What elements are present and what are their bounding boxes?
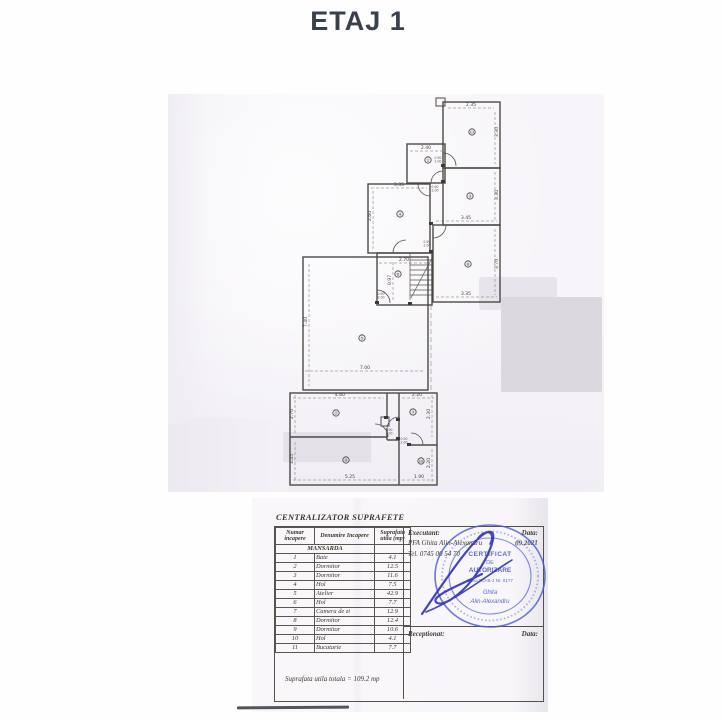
svg-text:0.902.00: 0.902.00 [401,437,408,444]
svg-text:3: 3 [469,194,471,198]
svg-text:0.902.00: 0.902.00 [435,156,442,163]
dimension-label: 3.70 [494,259,500,269]
table-row: 4Hol7.5 [276,581,411,590]
table-row: 5Atelier42.9 [276,590,411,599]
room-marker: 5 [359,335,365,341]
dimension-label: 3.30 [494,127,500,137]
dimension-label: 2.60 [367,211,373,221]
svg-text:0.902.00: 0.902.00 [432,185,439,192]
table-row: 8Dormitor12.4 [276,617,411,626]
table-row: 10Hol4.1 [276,635,411,644]
room-marker: 3 [467,193,473,199]
dimension-label: 5.25 [345,474,355,480]
dimension-label: 3.45 [461,215,471,221]
col-header-denumire: Denumire Incapere [315,528,375,545]
dimension-label: 2.35 [466,102,476,108]
svg-text:0.902.00: 0.902.00 [386,428,393,435]
dimension-label: 2.30 [426,409,432,419]
dimension-label: 3.35 [394,182,404,188]
dimension-label: 2.40 [421,145,431,151]
stamp-line: DE [486,560,494,566]
table-row: 7Camera de zi12.9 [276,608,411,617]
svg-text:2: 2 [335,411,337,415]
table-row: 11Bucatarie7.7 [276,644,411,653]
room-marker: 9 [343,457,349,463]
dimension-label: 3.35 [461,291,471,297]
page-title: ETAJ 1 [0,6,716,37]
surface-table: Numar incapere Denumire Incapere Suprafa… [275,527,411,653]
table-title: CENTRALIZATOR SUPRAFETE [276,512,404,522]
svg-text:0.902.00: 0.902.00 [378,292,385,299]
dimension-label: 7.00 [360,365,370,371]
room-marker: 8 [465,261,471,267]
staircase [410,253,432,300]
dimension-label: 4.60 [335,392,345,398]
dimension-label: 7.40 [303,317,309,327]
scanned-document-page: ETAJ 1 [0,0,722,720]
section-label: MANSARDA [276,545,375,554]
table-row: 6Hol7.7 [276,599,411,608]
dimension-label: 2.70 [289,409,295,419]
room-marker: 1 [425,157,431,163]
table-row: 3Dormitor11.6 [276,572,411,581]
dimension-label: 2.20 [426,458,432,468]
scan-shadow [168,94,208,424]
svg-text:10: 10 [419,459,424,463]
stamp-line: Ghita [483,590,498,596]
dimension-label: 3.45 [289,454,295,464]
stamp-line: Alin-Alexandru [469,599,510,605]
svg-text:7: 7 [412,410,414,414]
dimension-labels: 2.35 2.40 3.35 3.45 2.70 3.35 7.00 4.60 … [289,102,500,480]
stamp-line: AUTORIZARE [469,567,512,574]
table-row: 9Dormitor10.6 [276,626,411,635]
floor-plan: 2.35 2.40 3.35 3.45 2.70 3.35 7.00 4.60 … [280,92,570,492]
svg-text:0.902.00: 0.902.00 [424,240,431,247]
room-marker: 2 [333,410,339,416]
stamp-ring-text [442,532,538,621]
room-marker: 11 [469,129,475,135]
certification-stamp: CERTIFICAT DE AUTORIZARE Seria RO-B-J Nr… [416,516,558,638]
col-header-numar: Numar incapere [276,528,315,545]
room-markers: 11 1 3 8 4 6 5 2 7 9 10 [333,129,475,464]
dimension-label: 2.70 [399,257,409,263]
svg-text:1: 1 [427,158,429,162]
dimension-label: 1.90 [414,474,424,480]
svg-text:5: 5 [361,336,363,340]
svg-text:11: 11 [470,130,475,134]
dimension-label: 3.30 [494,190,500,200]
room-marker: 6 [395,271,401,277]
room-marker: 10 [418,458,424,464]
table-row: 2Dormitor12.5 [276,563,411,572]
dimension-label: 2.20 [412,392,422,398]
dimension-label: 0.97 [387,275,393,285]
room-marker: 4 [397,211,403,217]
table-row: 1Baie4.1 [276,554,411,563]
room-marker: 7 [410,409,416,415]
scan-shadow [168,418,288,492]
